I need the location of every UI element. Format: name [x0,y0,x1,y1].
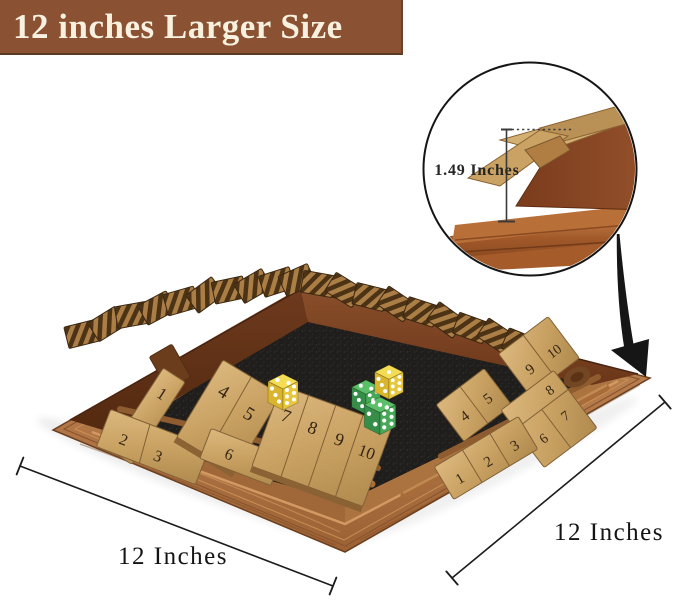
bottom-width-label: 12 Inches [118,543,228,570]
product-image: 1 2 3 4 5 6 7 8 9 10 [0,0,679,600]
yellow-die-left [268,374,298,410]
measurement-label: 1.49 Inches [434,162,519,179]
dimension-tick [659,395,670,408]
game-board: 1 2 3 4 5 6 7 8 9 10 [31,263,650,558]
size-banner-label: 12 inches Larger Size [13,7,343,47]
dimension-tick [17,458,24,475]
dimension-tick [330,578,337,595]
callout-arrow [617,234,634,350]
right-depth-label: 12 Inches [554,519,664,546]
size-banner: 12 inches Larger Size [0,0,403,55]
green-die-front [364,397,396,435]
dimension-tick [446,571,457,584]
yellow-die-right [375,365,404,399]
product-illustration: 1 2 3 4 5 6 7 8 9 10 [0,0,679,600]
